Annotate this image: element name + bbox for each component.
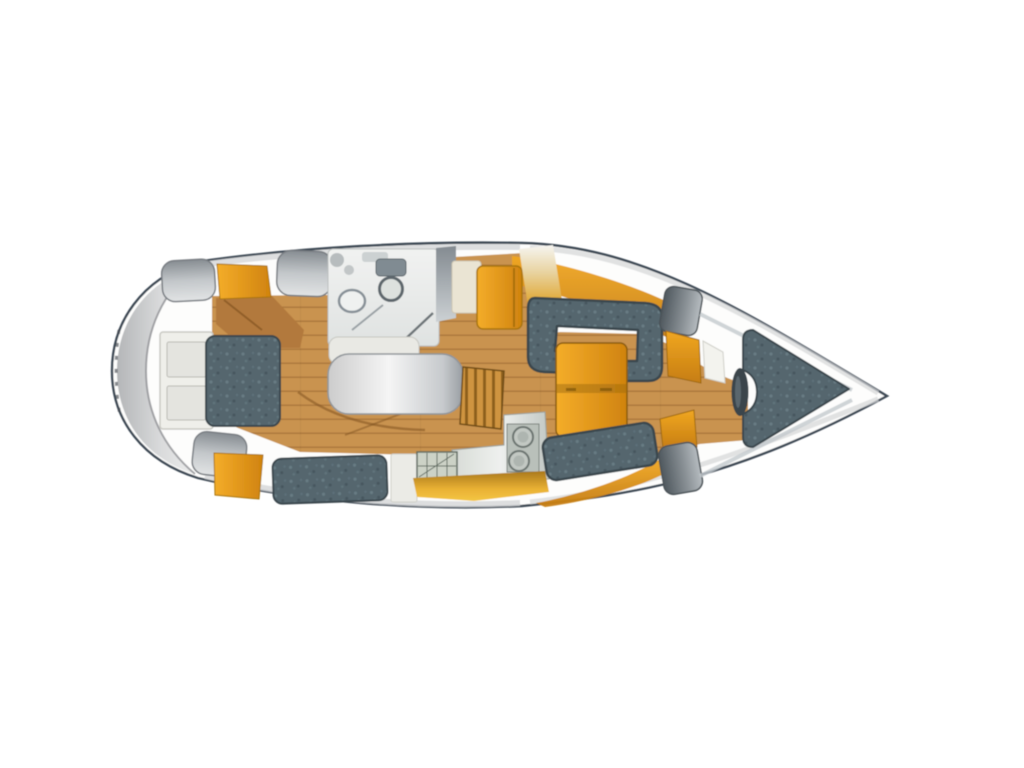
boat-layout-diagram [0, 0, 1024, 768]
v-berth-entry-highlight [735, 376, 741, 408]
aft-headboard-panel-upper [167, 342, 206, 377]
aft-deck-hatch-port-2 [276, 250, 333, 297]
aft-berth-mattress [206, 336, 280, 426]
aft-settee-cushion [272, 455, 388, 504]
sink-drain-1 [518, 432, 529, 443]
washbasin [339, 290, 365, 312]
toilet-tank [376, 259, 406, 276]
companionway-steps [460, 367, 504, 429]
head-bathroom [328, 249, 439, 346]
sink-drain-2 [514, 456, 525, 467]
aft-locker-starboard-orange [214, 453, 263, 499]
head-shower-smudge-2 [344, 265, 354, 275]
aft-shelf-port-orange [217, 264, 271, 299]
salon-table-hinge-2 [600, 388, 612, 391]
aft-deck-hatch-port-1 [161, 259, 216, 303]
center-white-table [328, 354, 463, 414]
boat-plan [112, 243, 887, 508]
fwd-locker-port-gray [658, 285, 703, 337]
aft-headboard-panel-lower [167, 386, 206, 420]
wardrobe-orange [477, 266, 522, 329]
toilet-bowl [380, 278, 403, 301]
boat-plan-svg [0, 0, 1024, 768]
salon-table-hinge-1 [566, 388, 576, 391]
fwd-locker-starboard-gray [657, 441, 704, 496]
head-shower-smudge-1 [330, 253, 344, 267]
fwd-dresser-port-orange [666, 331, 701, 383]
